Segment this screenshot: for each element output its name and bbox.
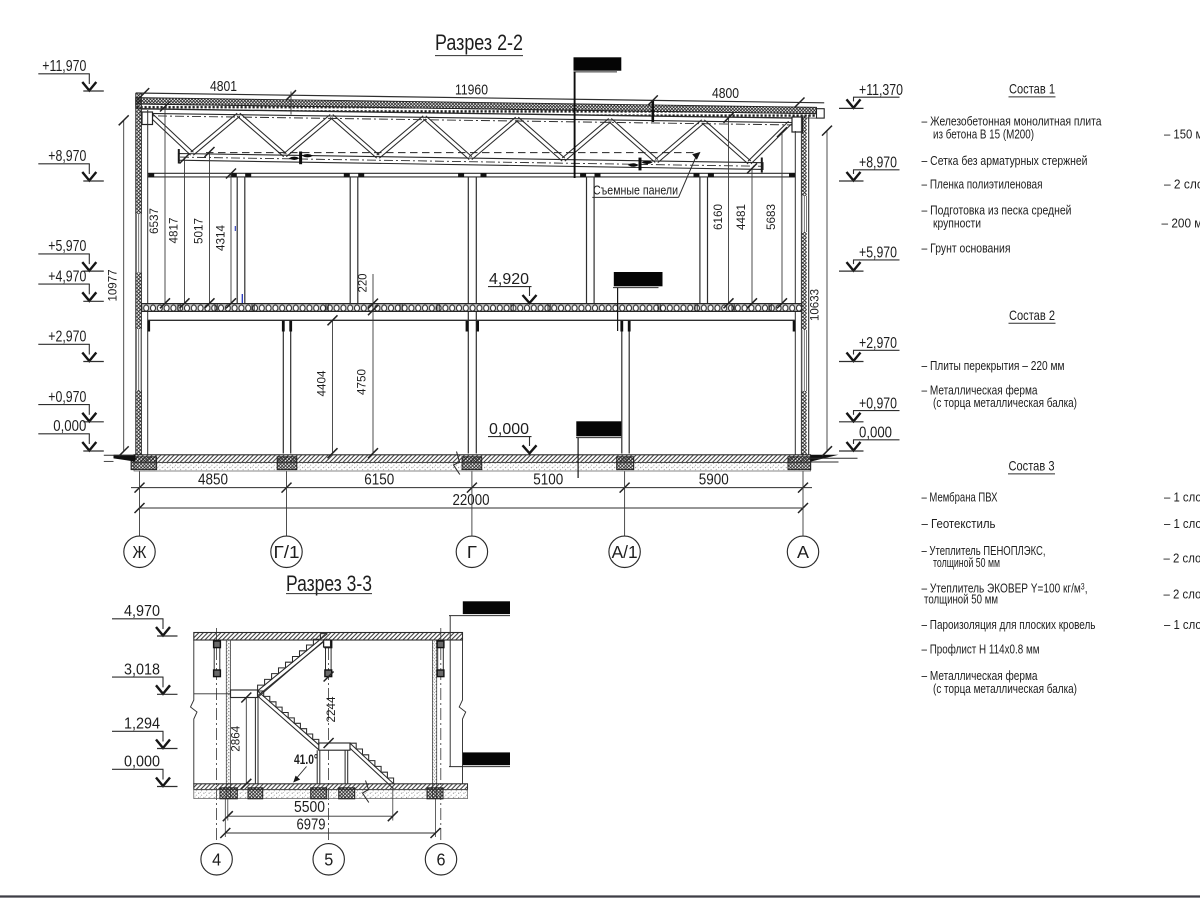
svg-text:4481: 4481 <box>734 204 748 230</box>
svg-text:Состав 3: Состав 3 <box>1009 459 1055 474</box>
svg-text:4750: 4750 <box>355 369 369 395</box>
svg-text:5683: 5683 <box>764 204 778 230</box>
svg-text:5900: 5900 <box>699 471 729 488</box>
svg-text:5500: 5500 <box>294 799 325 816</box>
svg-text:+11,970: +11,970 <box>42 58 86 75</box>
svg-text:6160: 6160 <box>711 204 725 230</box>
svg-text:– Пленка полиэтиленовая: – Пленка полиэтиленовая <box>922 177 1043 192</box>
svg-text:толщиной 50 мм: толщиной 50 мм <box>933 555 1000 570</box>
svg-text:– 2 слоя: – 2 слоя <box>1164 551 1200 566</box>
svg-text:22000: 22000 <box>453 492 490 509</box>
svg-text:+4,970: +4,970 <box>48 268 86 285</box>
svg-text:– 1 слой: – 1 слой <box>1164 490 1200 505</box>
svg-text:1,294: 1,294 <box>124 716 160 733</box>
svg-text:крупности: крупности <box>933 216 981 231</box>
svg-text:0,000: 0,000 <box>489 421 529 438</box>
svg-text:6: 6 <box>437 850 446 870</box>
svg-text:4: 4 <box>212 850 221 870</box>
svg-text:– Профлист Н 114х0.8 мм: – Профлист Н 114х0.8 мм <box>922 642 1040 657</box>
svg-text:5100: 5100 <box>533 471 563 488</box>
svg-text:– Мембрана ПВХ: – Мембрана ПВХ <box>922 490 998 505</box>
svg-text:0,000: 0,000 <box>859 425 892 442</box>
svg-text:6979: 6979 <box>297 817 326 834</box>
svg-text:4314: 4314 <box>213 225 227 251</box>
svg-text:– Геотекстиль: – Геотекстиль <box>922 516 996 531</box>
svg-text:толщиной 50 мм: толщиной 50 мм <box>924 592 998 607</box>
svg-text:+0,970: +0,970 <box>859 395 897 412</box>
svg-text:А/1: А/1 <box>612 542 638 562</box>
svg-text:4800: 4800 <box>712 85 739 102</box>
svg-text:– 1 слой: – 1 слой <box>1164 516 1200 531</box>
svg-text:– 150 мм: – 150 мм <box>1164 127 1200 142</box>
svg-text:0,000: 0,000 <box>53 418 86 435</box>
svg-text:Г/1: Г/1 <box>274 542 300 562</box>
svg-text:+5,970: +5,970 <box>48 238 86 255</box>
svg-text:Ж: Ж <box>133 542 147 562</box>
svg-text:Разрез 3-3: Разрез 3-3 <box>286 571 372 596</box>
svg-text:4850: 4850 <box>198 471 228 488</box>
svg-text:11960: 11960 <box>455 81 488 98</box>
svg-text:4,970: 4,970 <box>124 603 160 620</box>
svg-text:+11,370: +11,370 <box>859 82 903 99</box>
svg-text:0,000: 0,000 <box>124 754 160 771</box>
svg-text:+8,970: +8,970 <box>859 155 897 172</box>
svg-text:2244: 2244 <box>324 696 338 722</box>
svg-text:2864: 2864 <box>229 725 243 751</box>
svg-text:Г: Г <box>467 542 478 562</box>
svg-text:10633: 10633 <box>808 289 822 321</box>
svg-text:Разрез 2-2: Разрез 2-2 <box>435 30 523 55</box>
svg-text:+2,970: +2,970 <box>48 329 86 346</box>
svg-text:А: А <box>797 542 809 562</box>
svg-text:(с торца металлическая балка): (с торца металлическая балка) <box>933 395 1077 410</box>
svg-text:– 2 слоя: – 2 слоя <box>1164 587 1200 602</box>
svg-text:+8,970: +8,970 <box>48 148 86 165</box>
svg-text:Состав 1: Состав 1 <box>1009 82 1055 97</box>
svg-text:– 2 слоя: – 2 слоя <box>1164 177 1200 192</box>
svg-text:4801: 4801 <box>210 78 237 95</box>
svg-text:– Пароизоляция для плоских кро: – Пароизоляция для плоских кровель <box>922 617 1096 632</box>
svg-text:4404: 4404 <box>314 370 328 396</box>
svg-text:4817: 4817 <box>166 217 180 243</box>
svg-text:10977: 10977 <box>105 269 119 301</box>
svg-text:+2,970: +2,970 <box>859 335 897 352</box>
svg-text:– Сетка без арматурных стержне: – Сетка без арматурных стержней <box>922 153 1088 168</box>
svg-text:– 1 слой: – 1 слой <box>1164 617 1200 632</box>
svg-text:из бетона В 15 (М200): из бетона В 15 (М200) <box>933 127 1034 142</box>
svg-text:– 200 мм: – 200 мм <box>1162 216 1200 231</box>
svg-text:Состав 2: Состав 2 <box>1009 308 1055 323</box>
svg-text:– Плиты перекрытия – 220 мм: – Плиты перекрытия – 220 мм <box>922 358 1065 373</box>
svg-text:3,018: 3,018 <box>124 661 160 678</box>
svg-text:4,920: 4,920 <box>489 271 529 288</box>
svg-text:– Грунт основания: – Грунт основания <box>922 241 1011 256</box>
svg-text:5017: 5017 <box>191 218 205 244</box>
svg-text:5: 5 <box>324 850 333 870</box>
svg-text:220: 220 <box>356 273 370 292</box>
svg-text:41.0°: 41.0° <box>294 752 318 767</box>
svg-text:Съемные панели: Съемные панели <box>593 184 678 198</box>
svg-text:6150: 6150 <box>364 471 394 488</box>
svg-text:+0,970: +0,970 <box>48 389 86 406</box>
svg-text:(с торца металлическая балка): (с торца металлическая балка) <box>933 681 1077 696</box>
svg-text:6537: 6537 <box>147 208 161 234</box>
svg-text:+5,970: +5,970 <box>859 245 897 262</box>
